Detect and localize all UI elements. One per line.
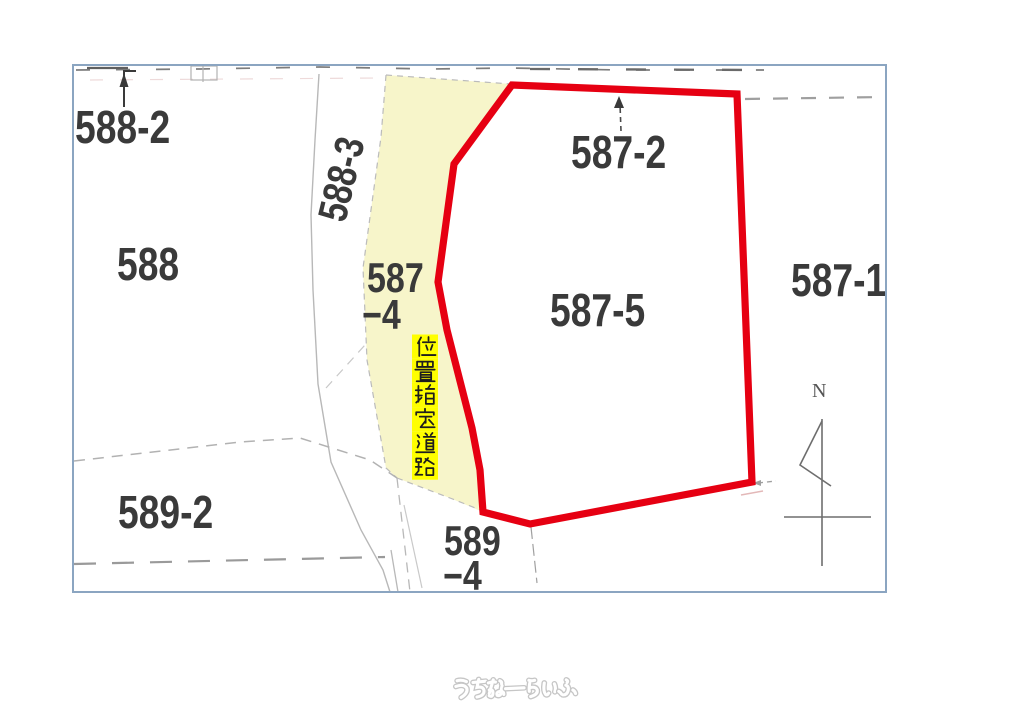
- svg-text:−4: −4: [362, 292, 401, 339]
- svg-text:588-2: 588-2: [75, 101, 170, 153]
- svg-text:587-2: 587-2: [571, 126, 666, 178]
- svg-text:587-1: 587-1: [791, 254, 886, 306]
- svg-text:N: N: [812, 380, 826, 402]
- svg-text:587-5: 587-5: [550, 284, 645, 336]
- svg-text:589-2: 589-2: [118, 486, 213, 538]
- svg-text:588: 588: [117, 238, 179, 290]
